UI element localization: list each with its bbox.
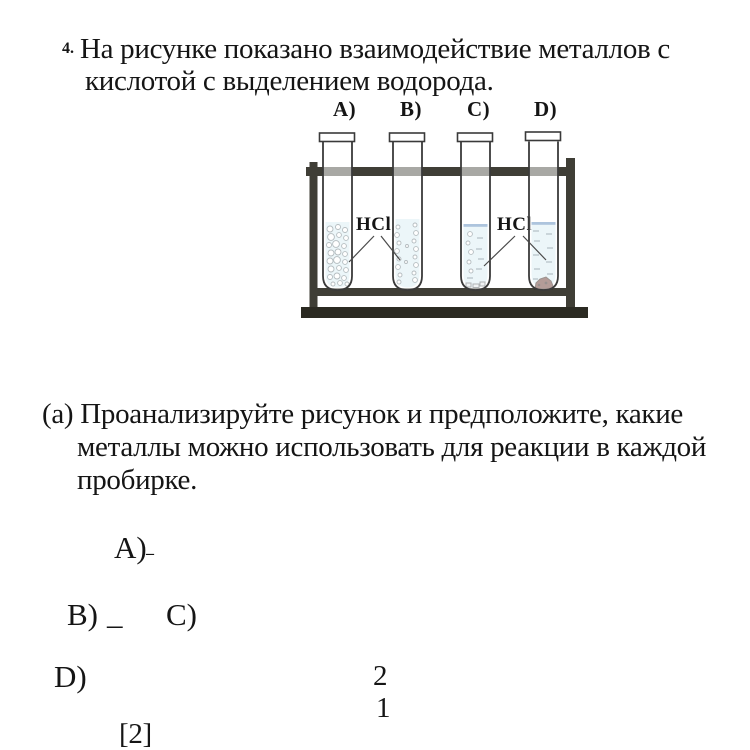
number-upper: 2 — [373, 660, 387, 692]
question-line-2: кислотой с выделением водорода. — [85, 65, 494, 97]
answer-b-blank: _ — [107, 597, 123, 632]
test-tube-a — [320, 133, 355, 290]
test-tube-d — [526, 132, 561, 290]
question-line-1: На рисунке показано взаимодействие метал… — [80, 33, 670, 65]
answer-a-blank: _ — [146, 540, 154, 558]
number-lower: 1 — [376, 692, 390, 724]
part-a-line-3: пробирке. — [77, 464, 197, 496]
test-tube-c — [458, 133, 493, 290]
hcl-pointer-lines — [349, 236, 546, 266]
question-number: 4. — [62, 40, 74, 58]
test-tube-b — [390, 133, 425, 290]
marks-label: [2] — [119, 718, 152, 750]
answer-b-label: B) — [67, 598, 98, 633]
part-a-line-2: металлы можно использовать для реакции в… — [77, 431, 706, 463]
metals-acid-reaction-figure — [295, 95, 605, 335]
answer-c-label: C) — [166, 598, 197, 633]
answer-a-label: А) — [114, 531, 147, 566]
document-page: 4. На рисунке показано взаимодействие ме… — [0, 0, 750, 750]
answer-d-label: D) — [54, 660, 87, 695]
part-a-line-1: (а) Проанализируйте рисунок и предположи… — [42, 398, 683, 430]
